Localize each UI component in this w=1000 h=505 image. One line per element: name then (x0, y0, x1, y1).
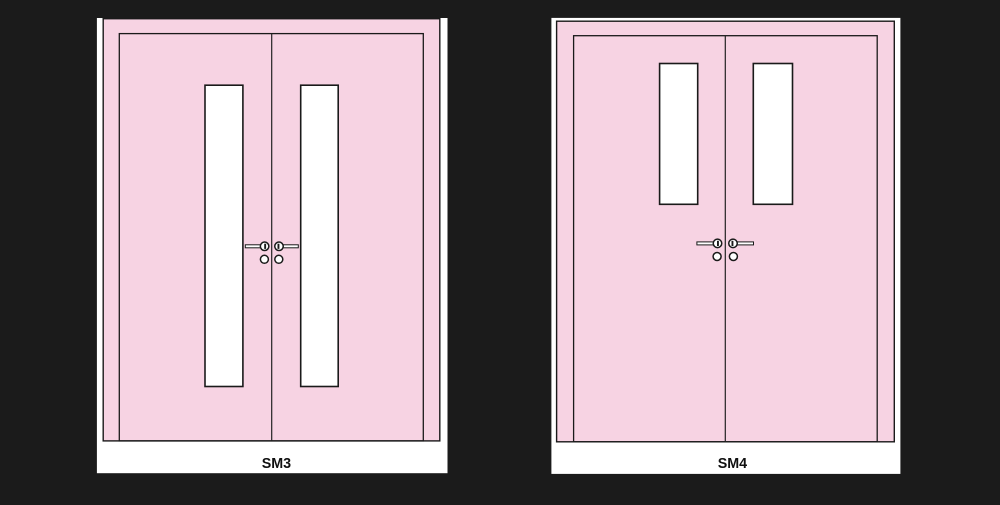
svg-text:SM3: SM3 (262, 456, 291, 472)
svg-text:SM4: SM4 (718, 456, 747, 472)
